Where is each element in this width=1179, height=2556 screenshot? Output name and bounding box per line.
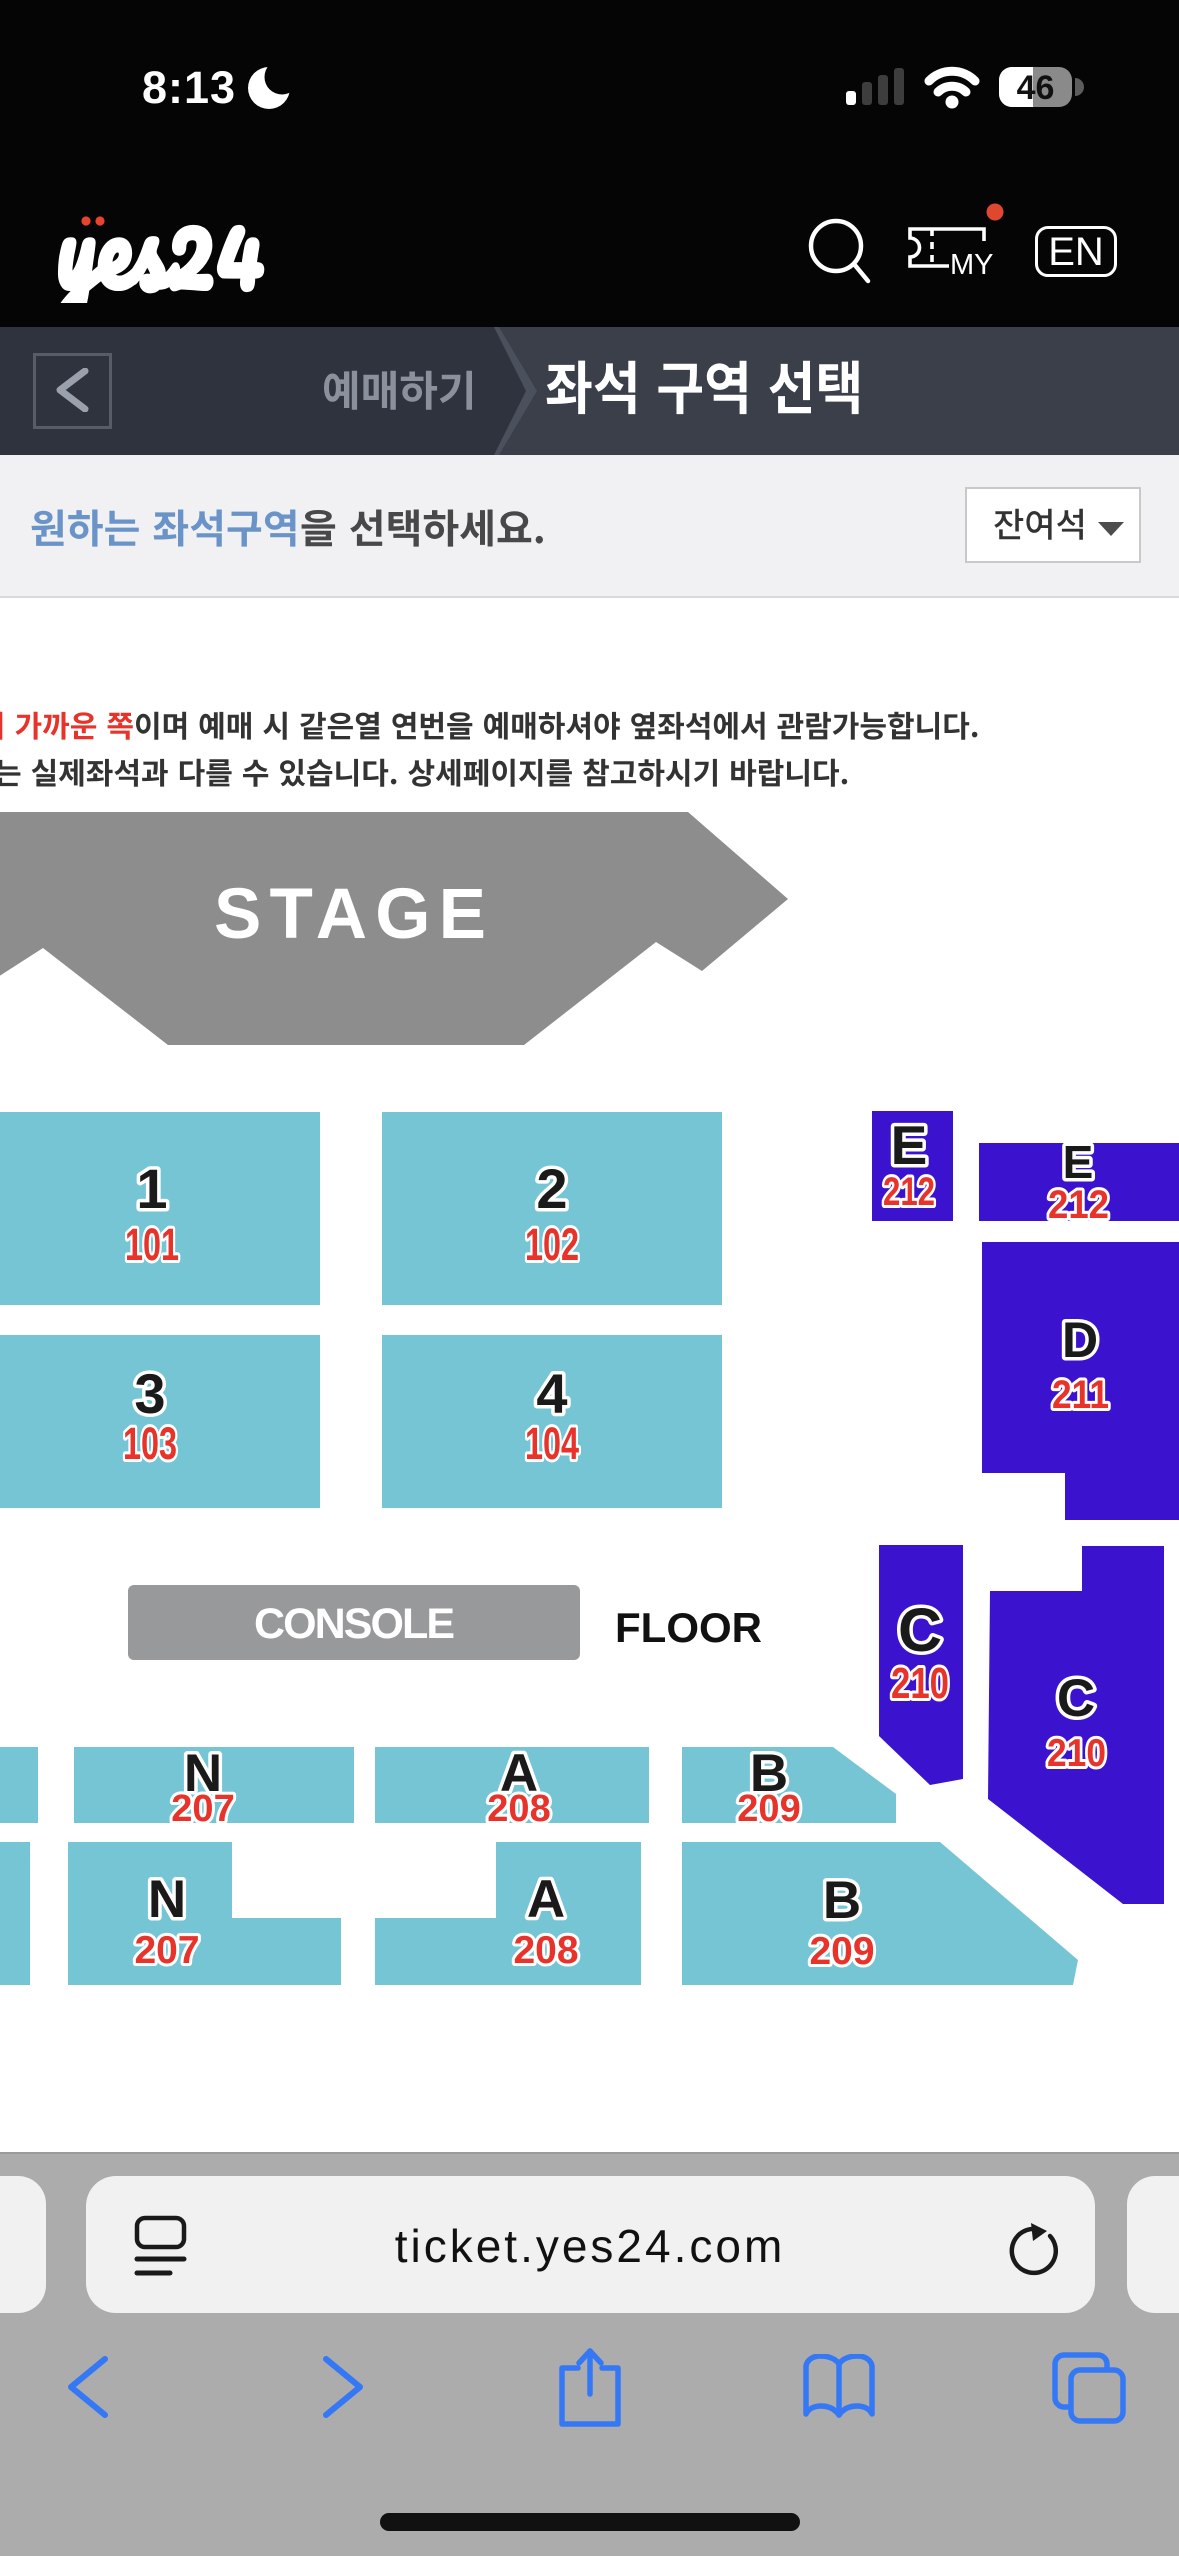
svg-text:ticket.yes24.com: ticket.yes24.com (395, 2220, 786, 2272)
svg-text:104: 104 (525, 1418, 579, 1469)
svg-text:207: 207 (134, 1929, 199, 1972)
svg-text:A: A (527, 1870, 565, 1929)
svg-text:210: 210 (891, 1659, 949, 1708)
svg-text:E: E (891, 1114, 928, 1176)
svg-text:E: E (1063, 1136, 1094, 1188)
svg-text:212: 212 (1048, 1183, 1109, 1227)
svg-text:210: 210 (1047, 1732, 1106, 1775)
svg-text:STAGE: STAGE (214, 875, 486, 954)
svg-text:MY: MY (950, 249, 994, 281)
svg-text:C: C (898, 1596, 942, 1664)
svg-text:209: 209 (737, 1788, 800, 1830)
svg-text:208: 208 (487, 1788, 550, 1830)
svg-text:FLOOR: FLOOR (615, 1604, 762, 1651)
svg-text:46: 46 (1017, 69, 1055, 107)
svg-text:4: 4 (536, 1362, 567, 1425)
svg-text:102: 102 (525, 1219, 579, 1270)
svg-text:208: 208 (513, 1929, 578, 1972)
svg-text:211: 211 (1052, 1373, 1109, 1417)
svg-text:C: C (1057, 1669, 1095, 1728)
svg-text:B: B (823, 1871, 861, 1930)
svg-text:CONSOLE: CONSOLE (254, 1600, 455, 1648)
svg-text:209: 209 (809, 1930, 874, 1973)
svg-text:2: 2 (536, 1157, 567, 1220)
svg-text:207: 207 (171, 1788, 234, 1830)
svg-text:D: D (1062, 1312, 1098, 1368)
svg-text:N: N (148, 1870, 186, 1929)
svg-text:1: 1 (136, 1157, 167, 1220)
svg-text:103: 103 (123, 1418, 177, 1469)
svg-text:3: 3 (134, 1362, 165, 1425)
svg-text:212: 212 (883, 1170, 935, 1214)
svg-text:101: 101 (125, 1219, 179, 1270)
